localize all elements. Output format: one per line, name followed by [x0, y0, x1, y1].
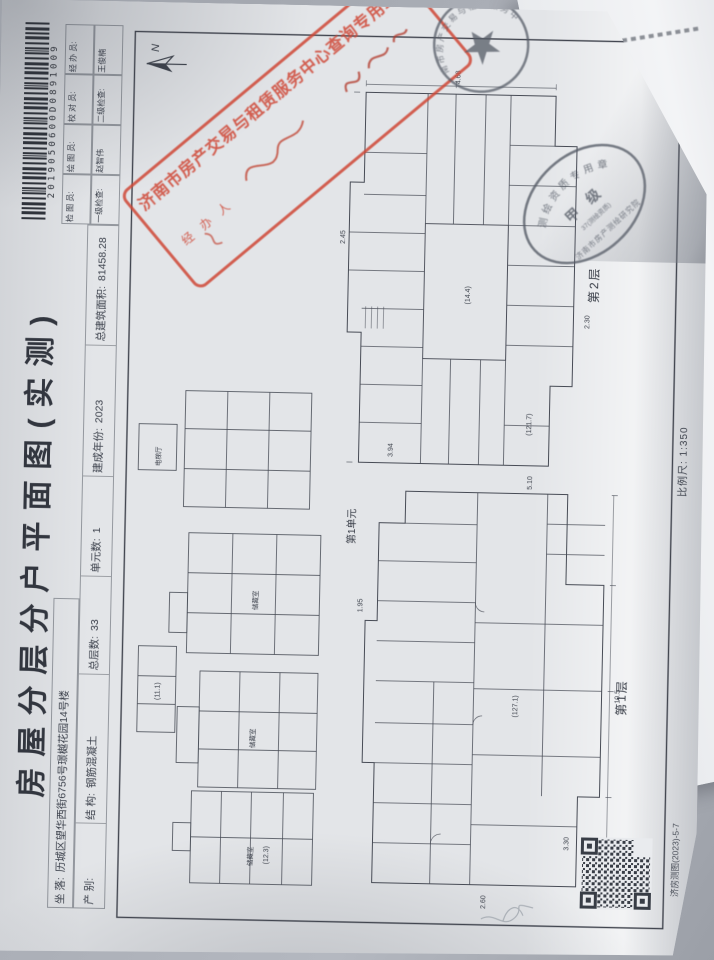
scale-label: 比例尺: 1:350: [674, 426, 690, 497]
svg-text:N: N: [150, 44, 162, 52]
paper-sheet: 房屋分层分户平面图(实测) 2019050600D0891009 坐 落:历城区…: [0, 0, 714, 960]
annotation: (14.4): [465, 286, 472, 304]
annotation: 储藏室: [250, 590, 259, 610]
annotation: 1.95: [357, 598, 364, 612]
photo-of-document: 房屋分层分户平面图(实测) 2019050600D0891009 坐 落:历城区…: [0, 0, 714, 960]
floor1-label: 第1层: [614, 679, 629, 716]
annotation: 2.45: [340, 230, 347, 244]
annotation: (11.1): [154, 682, 161, 700]
star-icon: [457, 21, 506, 69]
annotation: 3.94: [388, 443, 395, 457]
annotation: (12.3): [263, 846, 270, 864]
footer-code: 济房测图(2023)-5-7: [668, 823, 682, 897]
north-arrow-icon: N: [147, 44, 188, 73]
annotation: 5.10: [527, 476, 534, 490]
annotation: (121.7): [526, 414, 533, 436]
plan-floor2: [344, 92, 578, 467]
plan-floor1: [360, 490, 606, 887]
annotation: 电梯厅: [153, 446, 162, 466]
annotation: 储藏室: [245, 846, 254, 866]
pencil-scribble: [481, 904, 533, 922]
annotation: 2.60: [480, 895, 487, 909]
annotation: 储藏室: [247, 728, 256, 748]
annotation: 3.30: [563, 837, 570, 851]
annotation: (127.1): [512, 695, 519, 717]
unit-label: 第1单元: [345, 508, 359, 544]
annotation: 2.30: [584, 315, 591, 329]
qr-code: [579, 837, 652, 910]
